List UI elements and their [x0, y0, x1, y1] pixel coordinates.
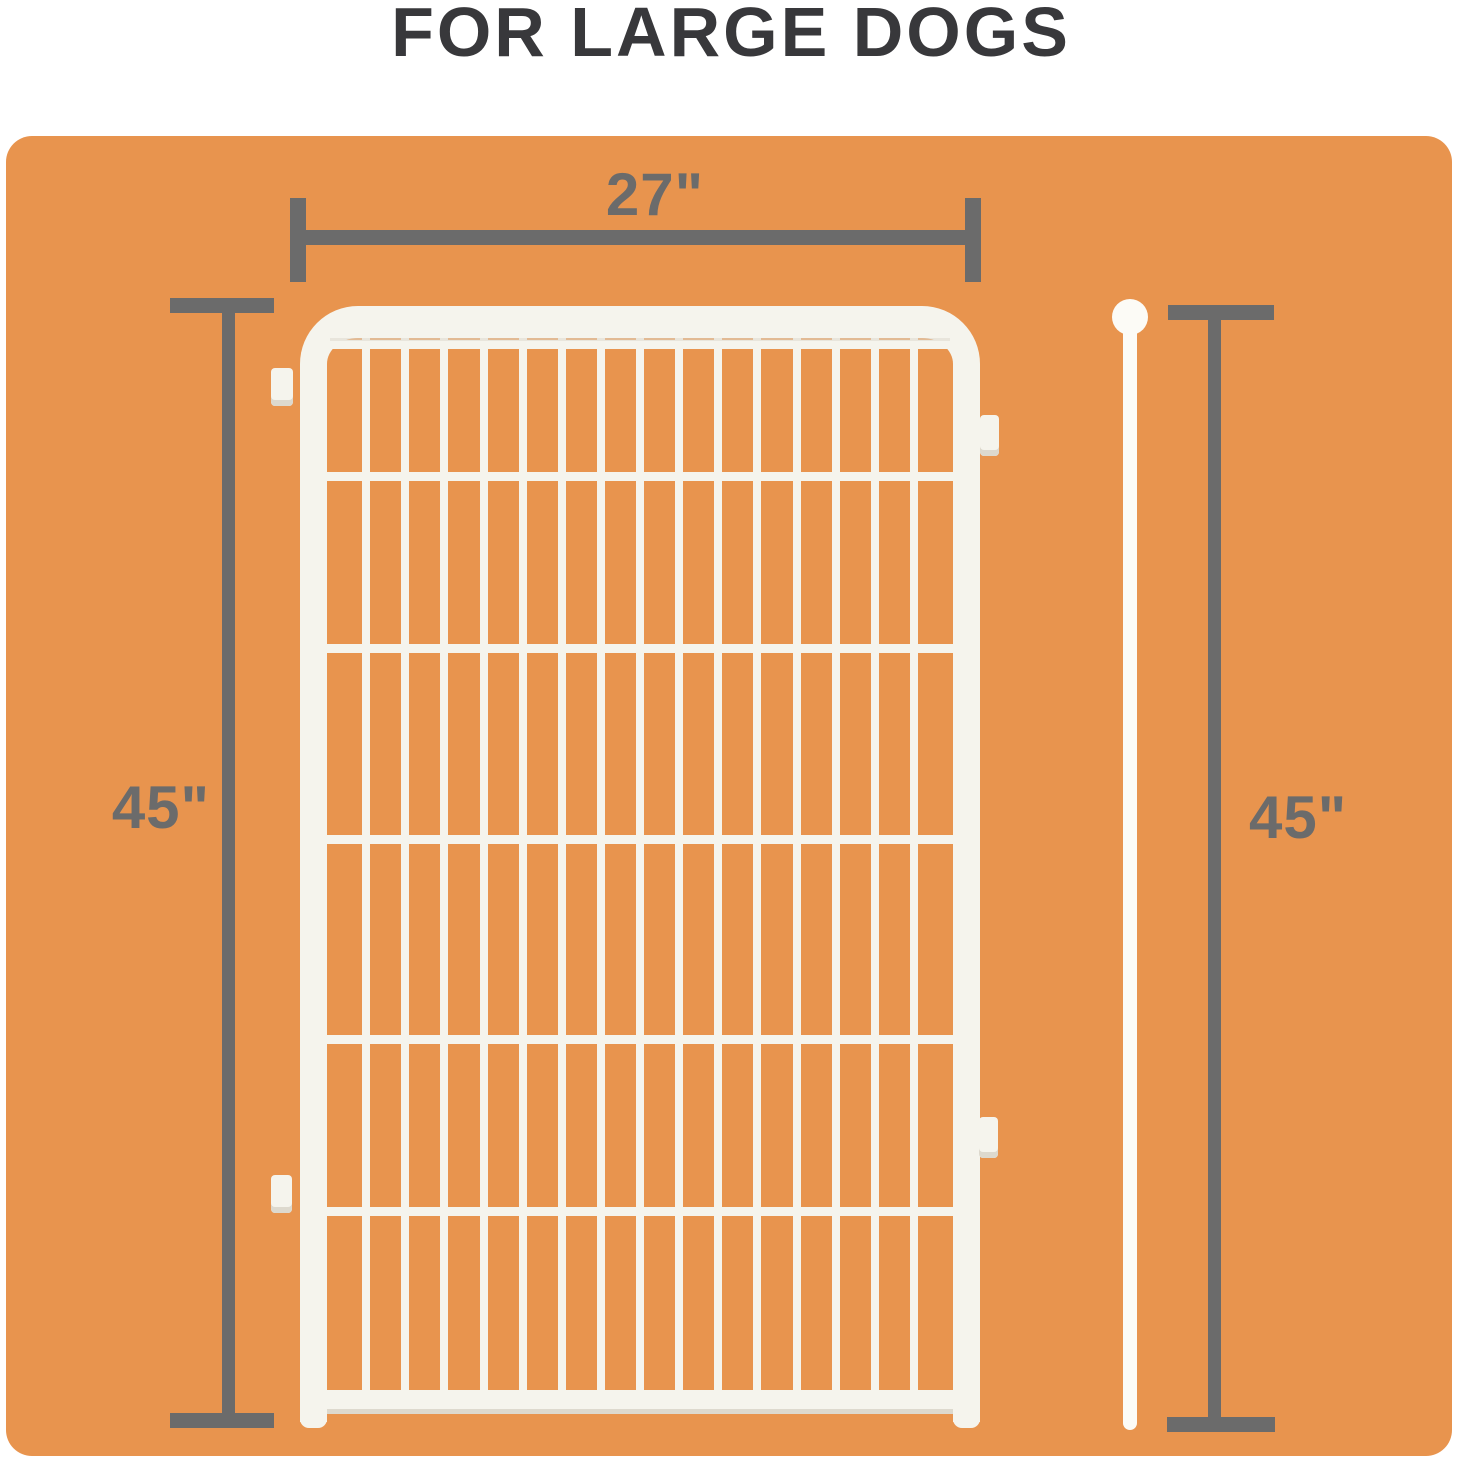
- left-height-dimension-line: [222, 305, 235, 1421]
- left-height-dimension-label: 45": [58, 778, 210, 838]
- right-height-dimension-bottom-cap: [1167, 1417, 1275, 1432]
- gate-frame: [300, 306, 980, 1422]
- width-dimension-line: [296, 230, 973, 245]
- latch-tab-top: [980, 415, 999, 456]
- gate-left-foot: [300, 1414, 327, 1428]
- hinge-tab-bottom: [271, 1175, 292, 1213]
- product-infographic: FOR LARGE DOGS 27" 45" 45": [0, 0, 1462, 1463]
- right-height-dimension-top-cap: [1168, 305, 1274, 320]
- latch-tab-bottom: [979, 1117, 998, 1158]
- hinge-tab-top: [271, 368, 293, 406]
- ground-stake-pole: [1123, 312, 1137, 1430]
- right-height-dimension-label: 45": [1249, 788, 1419, 848]
- gate-frame-inner-shadow: [330, 338, 950, 341]
- right-height-dimension-line: [1208, 312, 1221, 1425]
- gate-right-foot: [953, 1414, 980, 1428]
- page-title: FOR LARGE DOGS: [0, 0, 1462, 74]
- width-dimension-label: 27": [545, 165, 765, 225]
- ground-stake-ball-top: [1112, 299, 1148, 335]
